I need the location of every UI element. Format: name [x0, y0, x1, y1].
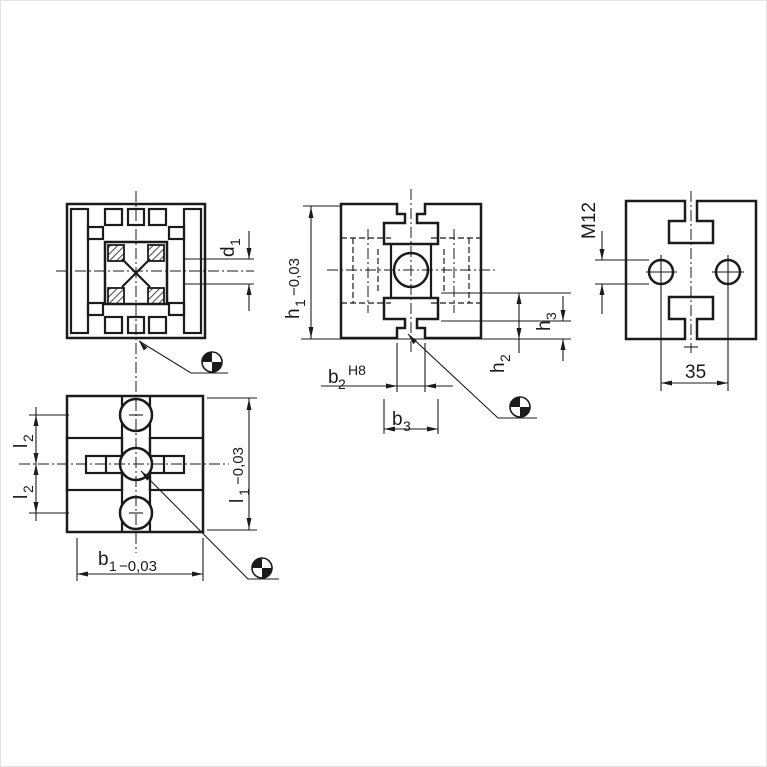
- cavity-stub: [169, 227, 184, 239]
- svg-text:l: l: [11, 495, 32, 499]
- svg-text:h: h: [283, 308, 304, 319]
- label-m12: M12: [579, 202, 600, 239]
- svg-text:3: 3: [403, 418, 411, 434]
- svg-text:2: 2: [497, 354, 513, 362]
- view-front-section: d 1: [67, 204, 254, 373]
- svg-text:h: h: [534, 320, 555, 331]
- drawing-sheet: d 1: [0, 0, 767, 767]
- svg-text:l: l: [227, 499, 248, 503]
- svg-text:b: b: [392, 409, 403, 430]
- label-b2: b 2 H8: [328, 362, 366, 392]
- left-t-slot: [67, 438, 122, 490]
- technical-drawing: d 1: [1, 1, 767, 767]
- dim-m12: M12: [579, 202, 649, 314]
- svg-text:2: 2: [20, 434, 36, 442]
- label-b1: b 1 −0,03: [98, 549, 157, 575]
- machining-target-icon: [510, 397, 530, 417]
- hatch-square: [148, 245, 164, 261]
- hatch-square: [108, 288, 124, 304]
- label-h2: h 2: [488, 354, 513, 373]
- label-l1: l 1 −0,03: [227, 447, 252, 503]
- svg-text:1: 1: [292, 299, 308, 307]
- dim-b2: b 2 H8: [321, 343, 453, 392]
- label-h1: h 1 −0,03: [283, 258, 308, 319]
- leader-machining-2: [408, 334, 537, 418]
- hatch-square: [148, 288, 164, 304]
- view-bottom: l 2 l 2 l 1 −0,03: [11, 396, 279, 581]
- svg-text:−0,03: −0,03: [119, 558, 157, 575]
- pocket: [105, 209, 122, 225]
- cavity-stub: [88, 303, 103, 315]
- svg-text:−0,03: −0,03: [230, 447, 247, 485]
- label-35: 35: [685, 362, 706, 383]
- dim-35: 35: [661, 362, 728, 386]
- dim-h2-h3: h 2 h 3: [441, 293, 571, 373]
- cavity-stub: [169, 303, 184, 315]
- svg-text:b: b: [328, 367, 339, 388]
- label-l2-lower: l 2: [11, 485, 36, 499]
- svg-text:d: d: [218, 246, 239, 257]
- svg-text:h: h: [488, 362, 509, 373]
- svg-text:1: 1: [109, 558, 117, 574]
- svg-text:−0,03: −0,03: [286, 258, 303, 296]
- svg-text:3: 3: [543, 312, 559, 320]
- machining-target-icon: [252, 558, 272, 578]
- leader-machining-1: [139, 341, 228, 373]
- label-d1: d 1: [218, 238, 243, 257]
- view-side-section: h 1 −0,03 b 2 H8 b: [283, 204, 571, 434]
- svg-text:M12: M12: [579, 202, 600, 239]
- svg-text:1: 1: [227, 238, 243, 246]
- hatch-square: [108, 245, 124, 261]
- pocket: [149, 317, 166, 333]
- cavity-stub: [88, 227, 103, 239]
- svg-text:H8: H8: [348, 362, 366, 378]
- svg-text:1: 1: [236, 488, 252, 496]
- machining-target-icon: [202, 352, 222, 372]
- pocket: [149, 209, 166, 225]
- label-l2-upper: l 2: [11, 434, 36, 448]
- dim-b3: b 3: [384, 399, 438, 434]
- svg-text:2: 2: [338, 376, 346, 392]
- leader-machining-3: [141, 471, 279, 579]
- pocket: [105, 317, 122, 333]
- svg-text:b: b: [98, 549, 109, 570]
- svg-text:l: l: [11, 444, 32, 448]
- view-side-holes: M12 35: [579, 201, 756, 391]
- svg-text:2: 2: [20, 485, 36, 493]
- dim-b1: b 1 −0,03: [77, 538, 203, 581]
